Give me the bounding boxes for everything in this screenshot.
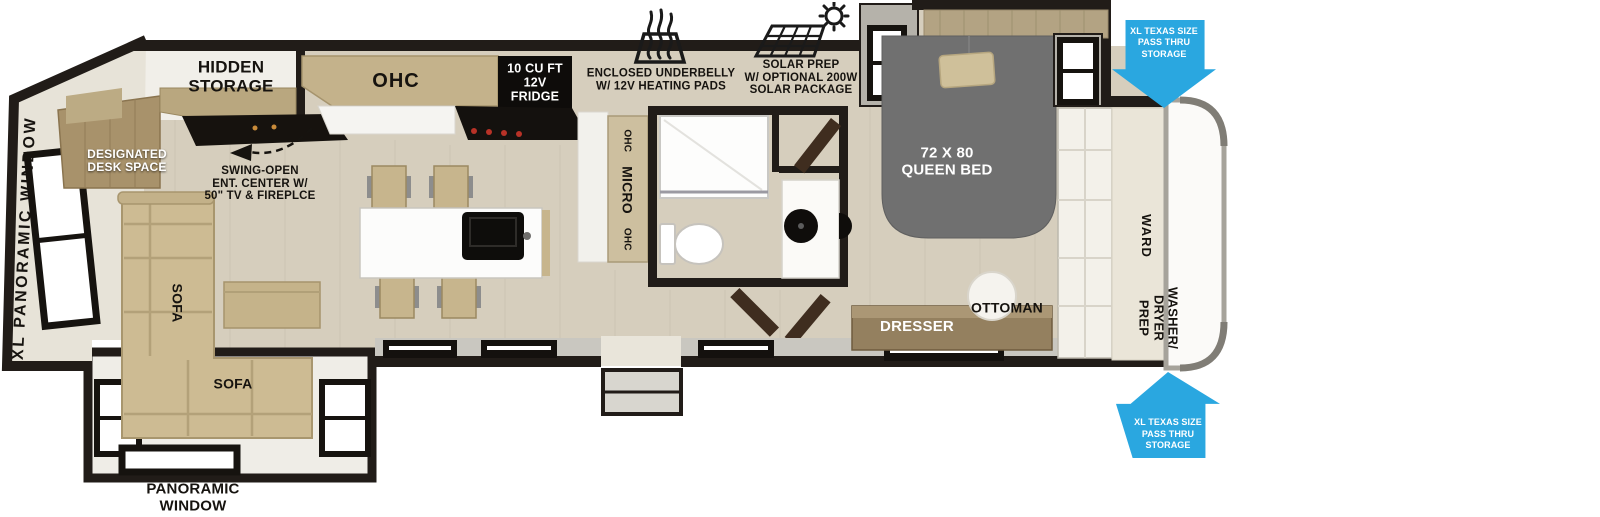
toilet [660,224,723,264]
ohc-label: OHC [372,70,419,92]
ward-label: WARD [1139,214,1153,258]
queen-bed-label: 72 X 80 QUEEN BED [902,146,993,179]
bed-pillow [939,52,995,88]
fireplace-glow [253,126,258,131]
bedroom-window-right [1060,40,1096,102]
sofa-front-label: SOFA [214,376,253,391]
rv-floorplan: XL TEXAS SIZE PASS THRU STORAGE XL TEXAS… [0,0,1600,517]
desk-space-label: DESIGNATED DESK SPACE [87,148,167,174]
island-faucet [523,232,531,240]
solar-prep-icon [748,2,852,64]
solar-label: SOLAR PREP W/ OPTIONAL 200W SOLAR PACKAG… [745,59,858,97]
underbelly-label: ENCLOSED UNDERBELLY W/ 12V HEATING PADS [587,67,735,92]
pass-thru-storage-label-bottom: XL TEXAS SIZE PASS THRU STORAGE [1116,417,1220,451]
dresser-label: DRESSER [880,319,954,336]
pass-thru-storage-label-top: XL TEXAS SIZE PASS THRU STORAGE [1112,26,1216,60]
pantry-micro-label: OHC MICRO OHC [619,129,634,250]
fridge-label: 10 CU FT 12V FRIDGE [507,62,563,103]
wardrobe-cabinet [1058,108,1112,358]
pantry-ohc-top-label: OHC [622,129,633,152]
hidden-storage-label: HIDDEN STORAGE [188,58,273,95]
kitchen-island [360,208,550,278]
shower [660,116,768,198]
counter-strip [578,112,608,262]
ent-center-label: SWING-OPEN ENT. CENTER W/ 50" TV & FIREP… [204,165,315,203]
entry-door-opening [601,336,681,366]
pantry-ohc-bottom-label: OHC [622,228,633,251]
fireplace-glow [272,125,277,130]
entry-steps [603,370,681,414]
panoramic-window-label: PANORAMIC WINDOW [146,482,239,515]
slideout-window-right [322,382,368,454]
washer-dryer-prep-label: WASHER/ DRYER PREP [1137,287,1180,349]
slideout-window-bottom [122,448,237,472]
cooktop-counter [455,106,590,140]
living-ottoman [224,282,320,328]
pantry-micro-text: MICRO [619,166,634,214]
sofa-side-label: SOFA [169,284,184,323]
ottoman-label: OTTOMAN [971,300,1043,315]
kitchen-counter [318,106,455,134]
wall-bedroom-top [912,0,1110,10]
enclosed-underbelly-icon [622,6,698,68]
